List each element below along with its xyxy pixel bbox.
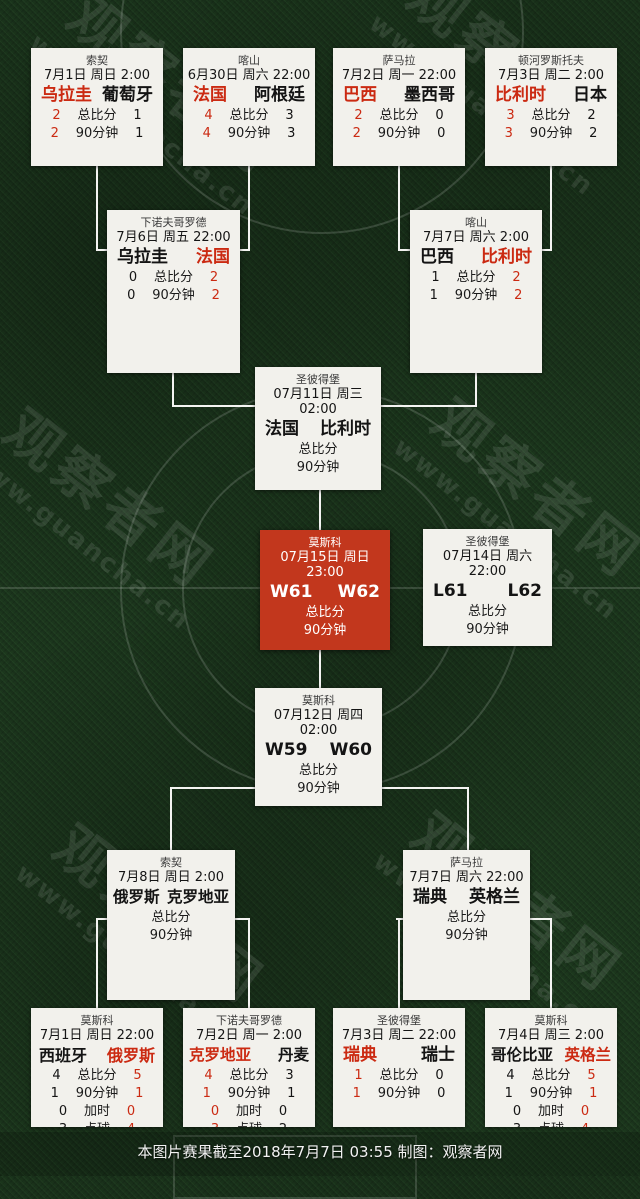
match-venue: 圣彼得堡 [423, 535, 552, 548]
match-datetime: 7月2日 周一 22:00 [333, 68, 465, 83]
home-score: 0 [53, 1105, 73, 1119]
stat-row: 0 加时 0 [183, 1105, 315, 1119]
away-team: 英格兰 [564, 1046, 611, 1065]
stat-row: 4 总比分 5 [485, 1069, 617, 1083]
match-card-r16-1: 索契 7月1日 周日 2:00 乌拉圭 葡萄牙 2 总比分 1 2 90分钟 1 [31, 48, 163, 166]
home-score: 0 [507, 1105, 527, 1119]
home-score: 1 [45, 1087, 65, 1101]
stat-label: 90分钟 [297, 461, 340, 475]
home-score: 4 [197, 127, 217, 141]
away-team: 比利时 [481, 248, 532, 267]
match-card-r16-4: 顿河罗斯托夫 7月3日 周二 2:00 比利时 日本 3 总比分 2 3 90分… [485, 48, 617, 166]
home-team: 巴西 [420, 248, 454, 267]
home-score: 3 [205, 1123, 225, 1127]
stat-row: 2 总比分 0 [333, 109, 465, 123]
match-datetime: 07月14日 周六 22:00 [423, 549, 552, 579]
away-score: 2 [204, 271, 224, 285]
away-score: 2 [583, 127, 603, 141]
home-score: 3 [507, 1123, 527, 1127]
match-card-final: 莫斯科 07月15日 周日 23:00 W61 W62 总比分 90分钟 [260, 530, 390, 650]
home-score: 4 [46, 1069, 66, 1083]
match-card-r16-3: 萨马拉 7月2日 周一 22:00 巴西 墨西哥 2 总比分 0 2 90分钟 … [333, 48, 465, 166]
away-score: 0 [430, 109, 450, 123]
stat-label: 90分钟 [304, 624, 347, 638]
home-score: 2 [348, 109, 368, 123]
away-score: 0 [121, 1105, 141, 1119]
stat-row: 总比分 [107, 911, 235, 925]
home-team: L61 [433, 582, 468, 601]
home-score: 1 [348, 1069, 368, 1083]
away-score: 2 [507, 271, 527, 285]
home-score: 0 [121, 289, 141, 303]
connector [248, 165, 250, 251]
match-card-qf-1: 下诺夫哥罗德 7月6日 周五 22:00 乌拉圭 法国 0 总比分 2 0 90… [107, 210, 240, 373]
away-team: W62 [338, 583, 380, 602]
stat-row: 1 90分钟 2 [410, 289, 542, 303]
stat-row: 1 90分钟 1 [183, 1087, 315, 1101]
home-score: 1 [499, 1087, 519, 1101]
teams-row: W59 W60 [255, 741, 382, 760]
match-datetime: 7月1日 周日 2:00 [31, 68, 163, 83]
away-score: 1 [129, 1087, 149, 1101]
match-venue: 喀山 [183, 54, 315, 67]
footer-note: 本图片赛果截至2018年7月7日 03:55 制图：观察者网 [0, 1132, 640, 1176]
match-card-third-place: 圣彼得堡 07月14日 周六 22:00 L61 L62 总比分 90分钟 [423, 529, 552, 646]
home-team: 哥伦比亚 [491, 1046, 553, 1065]
connector [467, 787, 469, 850]
home-score: 2 [347, 127, 367, 141]
stat-row: 2 总比分 1 [31, 109, 163, 123]
away-team: 法国 [196, 248, 230, 267]
connector [550, 918, 552, 1008]
home-team: 瑞典 [343, 1046, 377, 1065]
match-card-qf-2: 喀山 7月7日 周六 2:00 巴西 比利时 1 总比分 2 1 90分钟 2 [410, 210, 542, 373]
connector [380, 787, 469, 789]
stat-label: 总比分 [468, 605, 507, 619]
stat-row: 4 总比分 5 [31, 1069, 163, 1083]
away-team: 阿根廷 [254, 86, 305, 105]
match-card-r16-2: 喀山 6月30日 周六 22:00 法国 阿根廷 4 总比分 3 4 90分钟 … [183, 48, 315, 166]
teams-row: 巴西 比利时 [410, 248, 542, 267]
match-venue: 顿河罗斯托夫 [485, 54, 617, 67]
stat-row: 总比分 [423, 605, 552, 619]
away-team: 丹麦 [278, 1046, 309, 1065]
connector [398, 918, 400, 1008]
bracket-infographic: { "site": { "watermark_name": "观察者网", "w… [0, 0, 640, 1176]
teams-row: 巴西 墨西哥 [333, 86, 465, 105]
connector [172, 405, 257, 407]
away-team: 克罗地亚 [167, 888, 229, 907]
connector [528, 918, 552, 920]
home-team: 西班牙 [39, 1046, 87, 1065]
home-score: 1 [197, 1087, 217, 1101]
stat-row: 总比分 [255, 764, 382, 778]
away-score: 3 [280, 1069, 300, 1083]
home-team: 俄罗斯 [113, 888, 160, 907]
home-score: 1 [347, 1087, 367, 1101]
home-score: 3 [53, 1123, 73, 1127]
home-score: 1 [425, 271, 445, 285]
stat-label: 点球 [538, 1123, 564, 1127]
stat-row: 0 加时 0 [485, 1105, 617, 1119]
match-venue: 莫斯科 [255, 694, 382, 707]
away-score: 2 [273, 1123, 293, 1127]
away-score: 0 [431, 127, 451, 141]
away-score: 0 [273, 1105, 293, 1119]
match-venue: 莫斯科 [31, 1014, 163, 1027]
away-team: 英格兰 [469, 888, 520, 907]
away-score: 2 [582, 109, 602, 123]
match-card-r16-5: 莫斯科 7月1日 周日 22:00 西班牙 俄罗斯 4 总比分 5 1 90分钟… [31, 1008, 163, 1127]
stat-label: 总比分 [447, 911, 486, 925]
match-venue: 圣彼得堡 [255, 373, 381, 386]
home-team: 巴西 [343, 86, 377, 105]
stat-label: 90分钟 [228, 127, 271, 141]
match-datetime: 07月12日 周四 02:00 [255, 708, 382, 738]
stat-row: 4 总比分 3 [183, 1069, 315, 1083]
away-team: W60 [330, 741, 372, 760]
stat-row: 4 90分钟 3 [183, 127, 315, 141]
away-score: 1 [583, 1087, 603, 1101]
away-score: 3 [281, 127, 301, 141]
stat-row: 2 90分钟 1 [31, 127, 163, 141]
stat-label: 90分钟 [455, 289, 498, 303]
match-card-sf-1: 圣彼得堡 07月11日 周三 02:00 法国 比利时 总比分 90分钟 [255, 367, 381, 490]
connector [379, 405, 477, 407]
match-venue: 下诺夫哥罗德 [183, 1014, 315, 1027]
stat-label: 加时 [84, 1105, 110, 1119]
stat-row: 1 90分钟 1 [31, 1087, 163, 1101]
home-team: 瑞典 [413, 888, 447, 907]
stat-row: 90分钟 [255, 782, 382, 796]
match-card-r16-6: 下诺夫哥罗德 7月2日 周一 2:00 克罗地亚 丹麦 4 总比分 3 1 90… [183, 1008, 315, 1127]
stat-label: 总比分 [531, 109, 570, 123]
stat-label: 90分钟 [297, 782, 340, 796]
away-team: 日本 [573, 86, 607, 105]
away-score: 4 [575, 1123, 595, 1127]
teams-row: W61 W62 [260, 583, 390, 602]
stat-row: 1 总比分 2 [410, 271, 542, 285]
stat-row: 4 总比分 3 [183, 109, 315, 123]
home-team: 法国 [193, 86, 227, 105]
home-score: 3 [500, 109, 520, 123]
teams-row: 乌拉圭 葡萄牙 [31, 86, 163, 105]
stat-label: 总比分 [154, 271, 193, 285]
connector [319, 650, 321, 688]
stat-label: 总比分 [77, 1069, 116, 1083]
stat-row: 90分钟 [403, 929, 530, 943]
match-datetime: 7月4日 周三 2:00 [485, 1028, 617, 1043]
stat-label: 90分钟 [228, 1087, 271, 1101]
match-datetime: 7月1日 周日 22:00 [31, 1028, 163, 1043]
stat-label: 总比分 [531, 1069, 570, 1083]
stat-label: 总比分 [379, 109, 418, 123]
stat-row: 3 点球 4 [31, 1123, 163, 1127]
connector [398, 165, 400, 251]
match-venue: 萨马拉 [333, 54, 465, 67]
home-score: 3 [499, 127, 519, 141]
away-team: 比利时 [320, 420, 371, 439]
away-score: 5 [582, 1069, 602, 1083]
home-score: 2 [45, 127, 65, 141]
stat-label: 90分钟 [445, 929, 488, 943]
teams-row: 瑞典 英格兰 [403, 888, 530, 907]
connector [550, 165, 552, 251]
stat-label: 总比分 [77, 109, 116, 123]
stat-label: 加时 [236, 1105, 262, 1119]
match-venue: 索契 [107, 856, 235, 869]
home-score: 4 [198, 109, 218, 123]
away-score: 1 [129, 127, 149, 141]
match-card-qf-4: 萨马拉 7月7日 周六 22:00 瑞典 英格兰 总比分 90分钟 [403, 850, 530, 1000]
match-datetime: 7月3日 周二 22:00 [333, 1028, 465, 1043]
away-team: 墨西哥 [404, 86, 455, 105]
home-score: 0 [205, 1105, 225, 1119]
teams-row: 法国 比利时 [255, 420, 381, 439]
connector [170, 787, 172, 850]
match-venue: 萨马拉 [403, 856, 530, 869]
stat-row: 1 总比分 0 [333, 1069, 465, 1083]
home-team: 比利时 [495, 86, 546, 105]
match-datetime: 7月7日 周六 22:00 [403, 870, 530, 885]
stat-row: 1 90分钟 1 [485, 1087, 617, 1101]
teams-row: 法国 阿根廷 [183, 86, 315, 105]
stat-row: 0 总比分 2 [107, 271, 240, 285]
stat-label: 90分钟 [76, 127, 119, 141]
away-score: 4 [121, 1123, 141, 1127]
stat-row: 90分钟 [255, 461, 381, 475]
home-team: 法国 [265, 420, 299, 439]
stat-label: 总比分 [298, 443, 337, 457]
teams-row: 瑞典 瑞士 [333, 1046, 465, 1065]
stat-label: 90分钟 [378, 1087, 421, 1101]
stat-label: 总比分 [151, 911, 190, 925]
home-team: W61 [270, 583, 312, 602]
stat-label: 90分钟 [530, 127, 573, 141]
teams-row: 哥伦比亚 英格兰 [485, 1046, 617, 1065]
away-score: 1 [128, 109, 148, 123]
away-score: 2 [508, 289, 528, 303]
home-team: 克罗地亚 [189, 1046, 251, 1065]
match-venue: 莫斯科 [260, 536, 390, 549]
stat-label: 90分钟 [378, 127, 421, 141]
home-score: 0 [123, 271, 143, 285]
stat-row: 3 点球 2 [183, 1123, 315, 1127]
match-card-sf-2: 莫斯科 07月12日 周四 02:00 W59 W60 总比分 90分钟 [255, 688, 382, 806]
match-card-r16-7: 圣彼得堡 7月3日 周二 22:00 瑞典 瑞士 1 总比分 0 1 90分钟 … [333, 1008, 465, 1127]
stat-label: 90分钟 [152, 289, 195, 303]
home-score: 4 [500, 1069, 520, 1083]
stat-row: 2 90分钟 0 [333, 127, 465, 141]
home-score: 2 [46, 109, 66, 123]
match-datetime: 7月8日 周日 2:00 [107, 870, 235, 885]
match-card-r16-8: 莫斯科 7月4日 周三 2:00 哥伦比亚 英格兰 4 总比分 5 1 90分钟… [485, 1008, 617, 1127]
connector [172, 373, 174, 407]
stat-label: 90分钟 [150, 929, 193, 943]
stat-row: 1 90分钟 0 [333, 1087, 465, 1101]
home-score: 4 [198, 1069, 218, 1083]
match-datetime: 7月7日 周六 2:00 [410, 230, 542, 245]
stat-label: 总比分 [305, 606, 344, 620]
stat-row: 90分钟 [107, 929, 235, 943]
stat-label: 点球 [84, 1123, 110, 1127]
home-team: 乌拉圭 [117, 248, 168, 267]
match-datetime: 07月11日 周三 02:00 [255, 387, 381, 417]
match-venue: 莫斯科 [485, 1014, 617, 1027]
stat-label: 总比分 [229, 1069, 268, 1083]
match-datetime: 6月30日 周六 22:00 [183, 68, 315, 83]
match-datetime: 07月15日 周日 23:00 [260, 550, 390, 580]
away-team: 葡萄牙 [102, 86, 153, 105]
stat-row: 90分钟 [423, 623, 552, 637]
stat-label: 总比分 [299, 764, 338, 778]
connector [475, 373, 477, 407]
match-datetime: 7月3日 周二 2:00 [485, 68, 617, 83]
stat-row: 90分钟 [260, 624, 390, 638]
away-score: 3 [280, 109, 300, 123]
stat-label: 90分钟 [466, 623, 509, 637]
away-score: 1 [281, 1087, 301, 1101]
away-score: 0 [575, 1105, 595, 1119]
away-team: 瑞士 [421, 1046, 455, 1065]
connector [319, 490, 321, 530]
away-score: 2 [206, 289, 226, 303]
match-datetime: 7月2日 周一 2:00 [183, 1028, 315, 1043]
stat-row: 3 90分钟 2 [485, 127, 617, 141]
stat-row: 总比分 [260, 606, 390, 620]
connector [96, 918, 98, 1008]
teams-row: 乌拉圭 法国 [107, 248, 240, 267]
stat-label: 90分钟 [530, 1087, 573, 1101]
teams-row: 西班牙 俄罗斯 [31, 1046, 163, 1065]
stat-label: 总比分 [379, 1069, 418, 1083]
stat-row: 0 加时 0 [31, 1105, 163, 1119]
connector [170, 787, 257, 789]
teams-row: 克罗地亚 丹麦 [183, 1046, 315, 1065]
away-team: L62 [508, 582, 543, 601]
away-score: 0 [430, 1069, 450, 1083]
match-venue: 喀山 [410, 216, 542, 229]
stat-label: 总比分 [229, 109, 268, 123]
teams-row: 俄罗斯 克罗地亚 [107, 888, 235, 907]
match-venue: 下诺夫哥罗德 [107, 216, 240, 229]
away-team: 俄罗斯 [107, 1046, 155, 1065]
stat-label: 总比分 [456, 271, 495, 285]
away-score: 5 [128, 1069, 148, 1083]
match-venue: 索契 [31, 54, 163, 67]
stat-label: 90分钟 [76, 1087, 119, 1101]
stat-row: 总比分 [255, 443, 381, 457]
home-score: 1 [424, 289, 444, 303]
stat-label: 点球 [236, 1123, 262, 1127]
teams-row: L61 L62 [423, 582, 552, 601]
stat-label: 加时 [538, 1105, 564, 1119]
stat-row: 0 90分钟 2 [107, 289, 240, 303]
home-team: W59 [265, 741, 307, 760]
connector [96, 165, 98, 251]
match-card-qf-3: 索契 7月8日 周日 2:00 俄罗斯 克罗地亚 总比分 90分钟 [107, 850, 235, 1000]
stat-row: 总比分 [403, 911, 530, 925]
stat-row: 3 点球 4 [485, 1123, 617, 1127]
connector [248, 918, 250, 1008]
match-venue: 圣彼得堡 [333, 1014, 465, 1027]
teams-row: 比利时 日本 [485, 86, 617, 105]
stat-row: 3 总比分 2 [485, 109, 617, 123]
match-datetime: 7月6日 周五 22:00 [107, 230, 240, 245]
home-team: 乌拉圭 [41, 86, 92, 105]
away-score: 0 [431, 1087, 451, 1101]
